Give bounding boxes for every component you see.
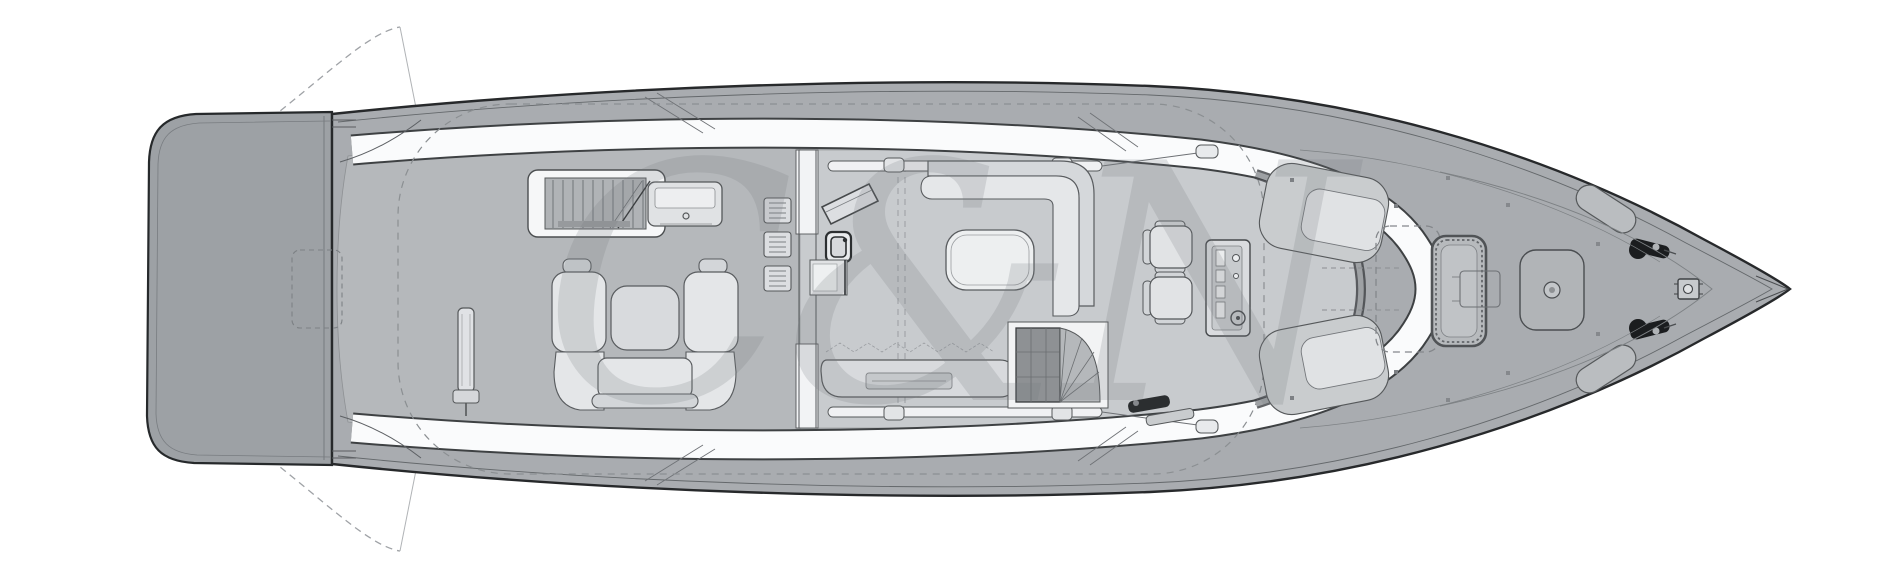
deck-vent-1 — [764, 198, 791, 223]
overhead-beam-bottom-fitting-1 — [884, 406, 904, 420]
aft-stairs-base-strip — [558, 221, 630, 227]
bow-deck-fitting-ring — [1684, 285, 1693, 294]
galley-sink-faucet — [843, 238, 847, 242]
yacht-deck-plan-page: C&N — [0, 0, 1900, 578]
spiral-stair-box — [1016, 328, 1060, 402]
helm-console-dial-2 — [1234, 274, 1239, 279]
bow-table-dot — [1549, 287, 1555, 293]
swim-platform — [147, 112, 332, 465]
lounge-right-sofa — [684, 272, 738, 352]
salon-table — [946, 230, 1034, 290]
foredeck-skylight-inner — [1441, 245, 1477, 337]
deck-vent-3 — [764, 266, 791, 291]
rail-top-pill — [1196, 145, 1218, 158]
helm-chair-2-seat — [1150, 277, 1192, 319]
lounge-bench-seat — [598, 358, 692, 398]
yacht-deck-plan-svg: C&N — [0, 0, 1900, 578]
passerelle-body — [458, 308, 474, 392]
aft-bar-cabinet-top — [655, 188, 715, 208]
lounge-left-sofa — [552, 272, 606, 352]
helm-chair-1-seat — [1150, 226, 1192, 268]
lounge-right-back-tab — [699, 259, 727, 273]
galley-counter-inner — [813, 264, 837, 291]
rail-bottom-pill — [1196, 420, 1218, 433]
lounge-bench-back — [592, 394, 698, 408]
overhead-beam-top-fitting-1 — [884, 158, 904, 172]
passerelle-foot — [453, 390, 479, 403]
helm-wheel-hub — [1236, 316, 1240, 320]
deck-vent-2 — [764, 232, 791, 257]
helm-console-dial-1 — [1233, 255, 1240, 262]
deck-hardware-dot — [1133, 400, 1139, 406]
lounge-coffee-table — [611, 286, 679, 350]
lounge-left-back-tab — [563, 259, 591, 273]
